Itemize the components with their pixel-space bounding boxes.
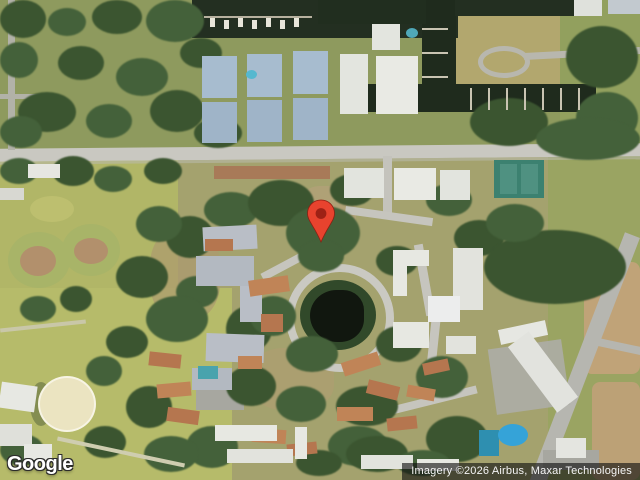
tree [486,204,544,242]
condo-building [293,51,328,94]
water-tank [38,376,96,432]
tree [144,158,182,184]
tree [116,58,168,96]
apartment-building [394,168,436,200]
swimming-pool [498,424,528,446]
dock [578,88,580,110]
tile-roof-building [205,239,233,251]
tile-roof-building [337,407,373,421]
condo-building [247,100,282,142]
tree [0,42,38,78]
dock [542,88,544,110]
tree [86,104,132,138]
sport-court-inner [500,164,517,194]
condo-building [340,54,368,114]
apartment-building [393,250,429,266]
industrial-building [0,382,38,413]
boat [294,18,299,27]
commercial-building [556,438,586,458]
tree [146,0,204,42]
boat [280,20,285,29]
apartment-building [446,336,476,354]
google-logo[interactable]: Google [7,453,73,476]
boat [252,20,257,29]
tree [0,116,42,148]
apartment-building [295,427,307,459]
tree [116,256,168,298]
industrial-building [0,424,32,446]
boat [210,18,215,27]
map-pin[interactable] [306,199,336,243]
apartment-row [214,166,330,179]
tree [94,166,132,192]
swimming-pool [479,430,499,456]
basin-west [318,0,426,24]
sport-court-inner [521,164,538,194]
park-knoll [30,196,74,222]
house [0,188,24,200]
tree [20,296,56,322]
satellite-map[interactable]: Google Imagery ©2026 Airbus, Maxar Techn… [0,0,640,480]
house [28,164,60,178]
tree [106,326,148,358]
condo-building [376,56,418,114]
tree [226,366,276,406]
tree [60,286,92,312]
dock [506,88,508,110]
apartment-building [215,425,277,441]
tree [86,356,122,386]
condo-building [202,56,237,98]
canal-north-edge [455,0,577,16]
map-pin-icon [306,199,336,243]
dock [422,76,448,78]
apartment-building [440,170,470,200]
dock [422,52,448,54]
tree [566,26,638,88]
imagery-attribution: Imagery ©2026 Airbus, Maxar Technologies [402,463,640,480]
dock [422,28,448,30]
complex-entrance [383,156,392,214]
tree [92,0,142,34]
condo-building [293,98,328,140]
tree [48,8,86,36]
condo-pool [406,28,418,38]
tree [0,0,46,38]
tree [146,296,208,342]
boat [238,18,243,27]
dock [560,88,562,110]
tile-roof-building [261,314,283,332]
condo-building [202,102,237,143]
apartment-building [393,266,407,296]
apartment-building [393,322,429,348]
boat [266,18,271,27]
condo-pool [246,70,257,79]
cul-de-sac-loop [478,46,530,78]
apartment-building [428,296,460,322]
dock [470,88,472,110]
ball-field-infield [74,238,108,264]
tile-roof-building [156,382,191,399]
apartment-building [344,168,384,198]
dock [524,88,526,110]
building [608,0,640,14]
tree [58,46,104,80]
tree [536,118,640,160]
apartment-building [196,256,254,286]
tree [276,386,326,422]
dock [488,88,490,110]
condo-building [372,24,400,50]
tree [298,240,344,272]
tree [136,206,182,242]
tree [286,336,338,372]
building [574,0,602,16]
complex-pool [198,366,218,379]
boat [224,20,229,29]
apartment-building [227,449,293,463]
ball-field-infield [20,246,56,276]
tile-roof-building [238,356,262,369]
tree [144,436,198,472]
